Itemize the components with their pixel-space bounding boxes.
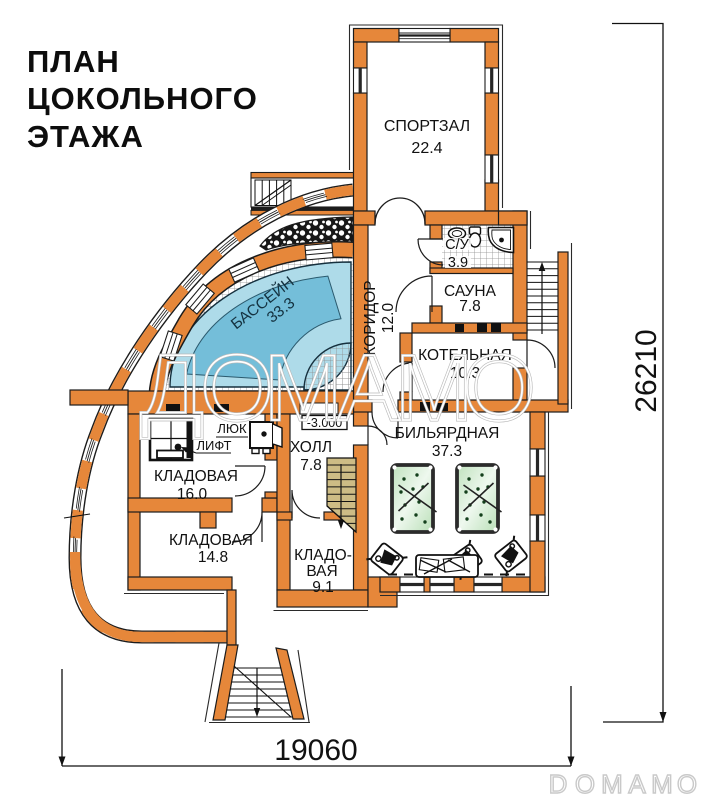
svg-text:M: M [601, 769, 623, 799]
svg-text:КЛАДОВАЯ: КЛАДОВАЯ [154, 468, 238, 485]
svg-text:Д: Д [140, 335, 204, 440]
svg-text:12.0: 12.0 [380, 303, 397, 334]
svg-text:19060: 19060 [274, 734, 357, 767]
svg-text:37.3: 37.3 [432, 443, 462, 460]
svg-text:O: O [677, 769, 697, 799]
svg-text:26210: 26210 [630, 329, 663, 412]
svg-text:О: О [200, 335, 273, 440]
svg-text:16.0: 16.0 [177, 486, 208, 503]
svg-text:М: М [395, 335, 473, 440]
svg-text:22.4: 22.4 [411, 140, 442, 157]
svg-text:ЛИФТ: ЛИФТ [197, 438, 232, 453]
svg-text:3.9: 3.9 [448, 255, 468, 271]
svg-text:ВАЯ: ВАЯ [306, 563, 337, 580]
svg-text:КЛАДОВАЯ: КЛАДОВАЯ [169, 532, 253, 549]
svg-text:С/У: С/У [445, 237, 470, 253]
svg-text:КЛАДО-: КЛАДО- [294, 547, 352, 564]
svg-text:7.8: 7.8 [300, 457, 322, 474]
svg-text:M: M [651, 769, 673, 799]
svg-text:М: М [264, 335, 342, 440]
svg-text:ХОЛЛ: ХОЛЛ [290, 439, 332, 456]
svg-text:ПЛАН: ПЛАН [27, 44, 120, 79]
svg-text:A: A [628, 769, 646, 799]
svg-text:14.8: 14.8 [198, 549, 228, 566]
svg-text:СПОРТЗАЛ: СПОРТЗАЛ [384, 118, 470, 135]
svg-text:А: А [338, 335, 401, 440]
svg-text:7.8: 7.8 [459, 298, 481, 315]
svg-text:D: D [549, 769, 568, 799]
svg-text:ЭТАЖА: ЭТАЖА [27, 119, 144, 154]
svg-text:O: O [575, 769, 595, 799]
svg-text:9.1: 9.1 [312, 579, 334, 596]
svg-text:ЦОКОЛЬНОГО: ЦОКОЛЬНОГО [27, 81, 258, 116]
svg-text:О: О [462, 335, 535, 440]
